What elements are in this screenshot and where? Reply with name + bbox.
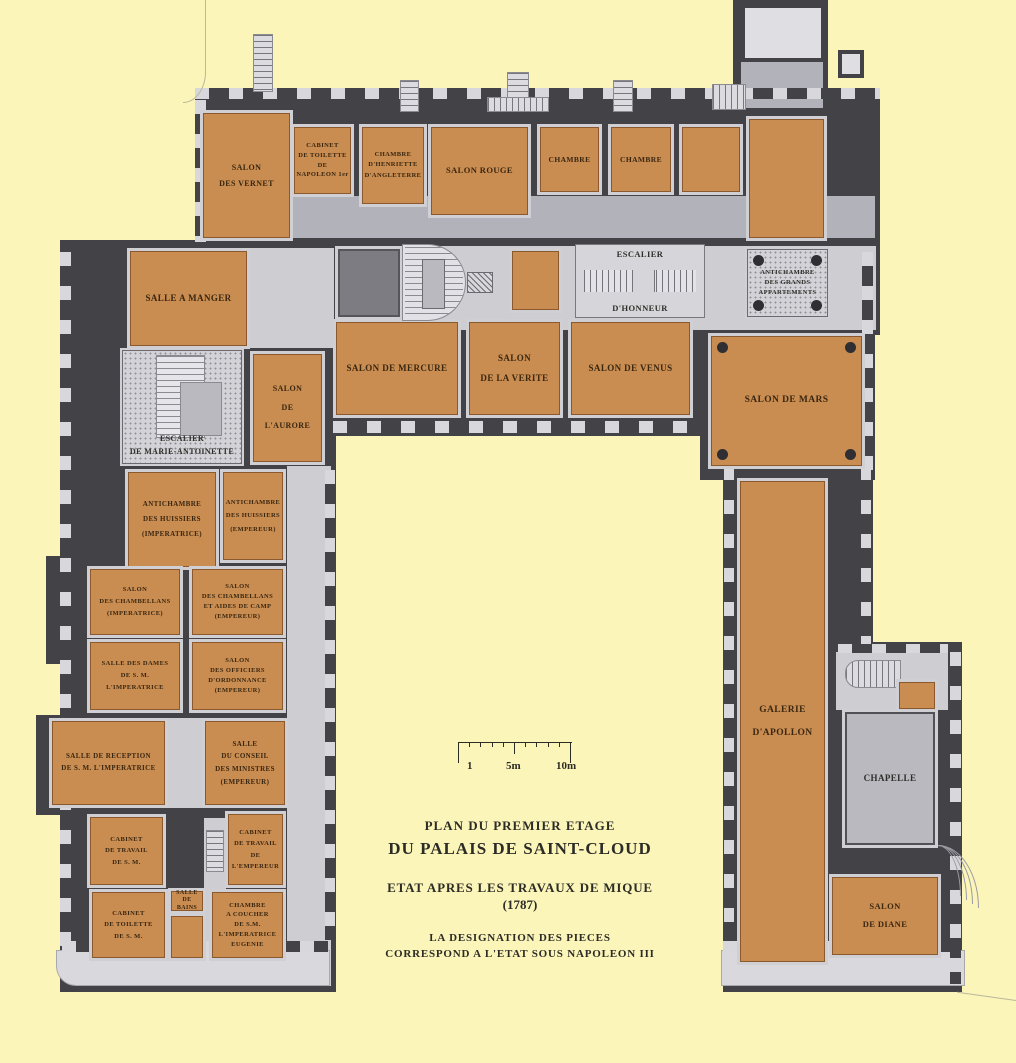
corner-column [811,300,822,311]
floor-service-stairs [250,248,334,348]
room-label: (EMPEREUR) [215,612,261,622]
room-label: D'APOLLON [752,722,812,745]
room-label: D'HONNEUR [612,303,668,313]
exterior-stair-northwest [253,34,273,92]
room-label: SALLE [233,738,258,751]
scale-tick [469,743,470,747]
corner-column [717,449,728,460]
room-label: SALON [273,380,303,398]
corner-column [811,255,822,266]
exterior-stair-north-center-wings [487,97,549,112]
room-label: CHAMBRE [620,154,662,166]
room-salon-de-diane: SALONDE DIANE [832,877,938,955]
room-label: ESCALIER [617,249,664,259]
room-salle-a-manger: SALLE A MANGER [130,251,247,346]
room-label: SALON [869,898,900,916]
room-salon-des-chambellans-et-aides-de-camp-empereur: SALONDES CHAMBELLANSET AIDES DE CAMP(EMP… [192,569,283,635]
scale-label-1: 1 [467,760,473,772]
room-label: ANTICHAMBRE [143,497,201,512]
room-salon-rouge: SALON ROUGE [431,127,528,215]
title-line-2: DU PALAIS DE SAINT-CLOUD [300,839,740,859]
scale-tick [503,743,504,747]
room-cabinet-de-toilette-de-s-m: CABINETDE TOILETTEDE S. M. [92,892,165,958]
room-oval-staircase [402,244,466,321]
room-room-center-small [512,251,559,310]
room-salon-de-mars: SALON DE MARS [711,336,862,466]
room-label: DE TOILETTE [298,151,346,161]
title-block: PLAN DU PREMIER ETAGE DU PALAIS DE SAINT… [300,818,740,960]
room-label: D'ORDONNANCE [208,676,267,686]
scale-tick [548,743,549,747]
room-label: DE TOILETTE [104,919,152,930]
room-galerie-d-apollon: GALERIED'APOLLON [740,481,825,962]
corner-column [753,255,764,266]
room-salle-des-dames-de-s-m-l-imperatrice: SALLE DES DAMESDE S. M. L'IMPERATRICE [90,642,180,710]
small-stair-center [467,272,493,293]
room-label: SALLE DE RECEPTION [66,751,151,763]
room-chapelle: CHAPELLE [845,712,935,845]
room-salon-de-l-aurore: SALONDEL'AURORE [253,354,322,462]
facade-windows-west [60,252,71,946]
title-line-3: ETAT APRES LES TRAVAUX DE MIQUE [300,880,740,896]
room-room-bains-annex [171,916,203,958]
room-escalier-de-marie-antoinette: ESCALIERDE MARIE-ANTOINETTE [122,350,242,464]
room-label: SALON [232,160,262,175]
room-label: DE S.M. [234,920,260,930]
room-label: DE S. M. L'IMPERATRICE [61,763,155,775]
scale-tick [480,743,481,747]
facade-windows-annex-east [950,652,961,984]
room-label: ESCALIER [160,433,204,445]
room-label: D'ANGLETERRE [365,171,422,181]
scale-tick [492,743,493,747]
room-label: DES CHAMBELLANS [202,592,273,602]
room-label: ANTICHAMBRE [226,496,281,510]
room-label: SALON [225,656,249,666]
room-salle-de-bains: SALLEDE BAINS [171,891,203,911]
room-escalier-d-honneur: ESCALIERD'HONNEUR [575,244,705,318]
room-label: (EMPEREUR) [215,686,261,696]
corner-column [845,449,856,460]
room-label: DES OFFICIERS [210,666,265,676]
room-label: L'EMPEREUR [232,861,279,872]
exterior-stair-north-1 [400,80,419,112]
room-cabinet-de-travail-de-s-m: CABINETDE TRAVAILDE S. M. [90,817,163,885]
room-label: NAPOLEON 1er [296,170,348,180]
tower-annex-room [842,54,860,74]
room-label: DE TRAVAIL [234,838,277,849]
tower-vestibule [741,62,823,108]
room-label: L'IMPERATRICE [219,930,277,940]
room-label: DE TRAVAIL [105,845,148,856]
room-label: SALON [123,584,147,596]
room-label: DE S. M. L'IMPERATRICE [91,670,179,693]
scale-label-10m: 10m [556,760,576,772]
room-label: SALON [498,349,531,369]
room-label: CABINET [306,141,338,151]
facade-windows-annex-north [838,644,948,653]
room-label: DE BAINS [172,897,202,911]
corner-column [845,342,856,353]
room-salon-des-vernet: SALONDES VERNET [203,113,290,238]
room-label: DES CHAMBELLANS [99,596,170,608]
room-label: DES GRANDS [765,278,811,288]
title-line-1: PLAN DU PREMIER ETAGE [300,818,740,834]
room-label: DE S. M. [112,857,140,868]
room-label: SALON ROUGE [446,164,513,178]
room-salon-des-chambellans-imperatrice: SALONDES CHAMBELLANS(IMPERATRICE) [90,569,180,635]
room-label: (EMPEREUR) [221,776,270,789]
facade-windows-salons-south [333,421,703,433]
room-room-northeast-1 [682,127,740,192]
room-label: CHAMBRE [229,901,266,911]
room-chambre-a-coucher-de-s-m-l-imperatrice-eugenie: CHAMBREA COUCHERDE S.M.L'IMPERATRICEEUGE… [212,892,283,958]
corner-column [717,342,728,353]
room-label: DES HUISSIERS [143,512,201,527]
room-chambre-1: CHAMBRE [540,127,599,192]
tower-room [745,8,821,58]
room-label: DU CONSEIL [221,750,268,763]
room-antichambre-des-huissiers-empereur: ANTICHAMBREDES HUISSIERS(EMPEREUR) [223,472,283,560]
service-stair-cabinets [206,830,224,872]
room-chambre-d-henriette-d-angleterre: CHAMBRED'HENRIETTED'ANGLETERRE [362,127,424,204]
room-label: DE LA VERITE [480,369,548,389]
facade-windows-galerie-east [861,466,871,646]
room-antichambre-des-huissiers-imperatrice: ANTICHAMBREDES HUISSIERS(IMPERATRICE) [128,472,216,567]
room-salon-de-mercure: SALON DE MERCURE [336,322,458,415]
room-label: DES MINISTRES [215,763,275,776]
room-label: APPARTEMENTS [759,288,817,298]
room-salon-de-venus: SALON DE VENUS [571,322,690,415]
scale-label-5m: 5m [506,760,521,772]
corridor-reception [168,718,202,808]
room-label: (IMPERATRICE) [107,608,163,620]
title-line-6: CORRESPOND A L'ETAT SOUS NAPOLEON III [300,948,740,960]
curved-steps-4 [938,845,979,908]
title-line-4: (1787) [300,897,740,913]
room-room-northeast-2 [749,119,824,238]
room-label: A COUCHER [226,910,269,920]
corner-column [753,300,764,311]
scale-tick [559,743,560,747]
room-salle-de-reception-de-s-m-l-imperatrice: SALLE DE RECEPTIONDE S. M. L'IMPERATRICE [52,721,165,805]
facade-windows-mars-east [862,252,873,474]
room-label: CABINET [112,908,144,919]
scale-bar: 1 5m 10m [458,742,572,769]
scale-tick-mid [514,743,515,754]
room-label: CABINET [110,834,142,845]
room-label: CABINET [239,827,271,838]
room-label: EUGENIE [231,940,264,950]
room-label: SALLE A MANGER [145,291,231,305]
floor-plan-canvas: 1 5m 10m PLAN DU PREMIER ETAGE DU PALAIS… [0,0,1016,1063]
room-label: SALON DE MERCURE [347,361,448,375]
exterior-stair-north-2 [613,80,633,112]
annex-stair [845,660,901,688]
room-label: (IMPERATRICE) [142,527,202,542]
room-cabinet-de-travail-de-l-empereur: CABINETDE TRAVAILDEL'EMPEREUR [228,814,283,885]
room-label: L'AURORE [265,417,310,435]
room-label: DE MARIE-ANTOINETTE [130,446,234,458]
room-cabinet-de-toilette-de-napoleon-1er: CABINETDE TOILETTEDENAPOLEON 1er [294,127,351,194]
room-chambre-2: CHAMBRE [611,127,671,192]
title-line-5: LA DESIGNATION DES PIECES [300,932,740,944]
tower-stair [712,84,746,110]
room-label: GALERIE [759,699,806,722]
scale-tick [525,743,526,747]
room-label: (EMPEREUR) [230,523,276,537]
room-label: SALLE [176,890,198,897]
room-label: ANTICHAMBRE [760,268,815,278]
room-room-dark-center [338,249,400,317]
room-label: SALON DE VENUS [589,361,673,375]
path-line-southeast [957,976,1016,1001]
room-label: SALON DE MARS [745,393,829,408]
room-salon-de-la-verite: SALONDE LA VERITE [469,322,560,415]
room-label: CHAMBRE [549,154,591,166]
room-antichambre-des-grands-appartements: ANTICHAMBREDES GRANDSAPPARTEMENTS [747,249,828,317]
room-label: D'HENRIETTE [368,160,418,170]
room-label: DES HUISSIERS [226,509,280,523]
room-label: DE [251,850,261,861]
room-label: ET AIDES DE CAMP [204,602,272,612]
room-label: DE [318,161,328,171]
room-label: DE DIANE [863,916,908,934]
scale-tick [536,743,537,747]
scale-tick-start [458,743,459,763]
room-room-chapelle-annex [899,682,935,709]
room-label: DES VERNET [219,176,274,191]
room-label: DE [282,399,294,417]
room-salle-du-conseil-des-ministres-empereur: SALLEDU CONSEILDES MINISTRES(EMPEREUR) [205,721,285,805]
room-label: SALLE DES DAMES [102,658,169,670]
room-label: DE S. M. [114,931,142,942]
room-label: CHAPELLE [864,771,917,785]
room-label: CHAMBRE [375,150,412,160]
terrace-line-northwest [205,0,206,73]
room-salon-des-officiers-d-ordonnance-empereur: SALONDES OFFICIERSD'ORDONNANCE(EMPEREUR) [192,642,283,710]
room-label: SALON [225,582,249,592]
